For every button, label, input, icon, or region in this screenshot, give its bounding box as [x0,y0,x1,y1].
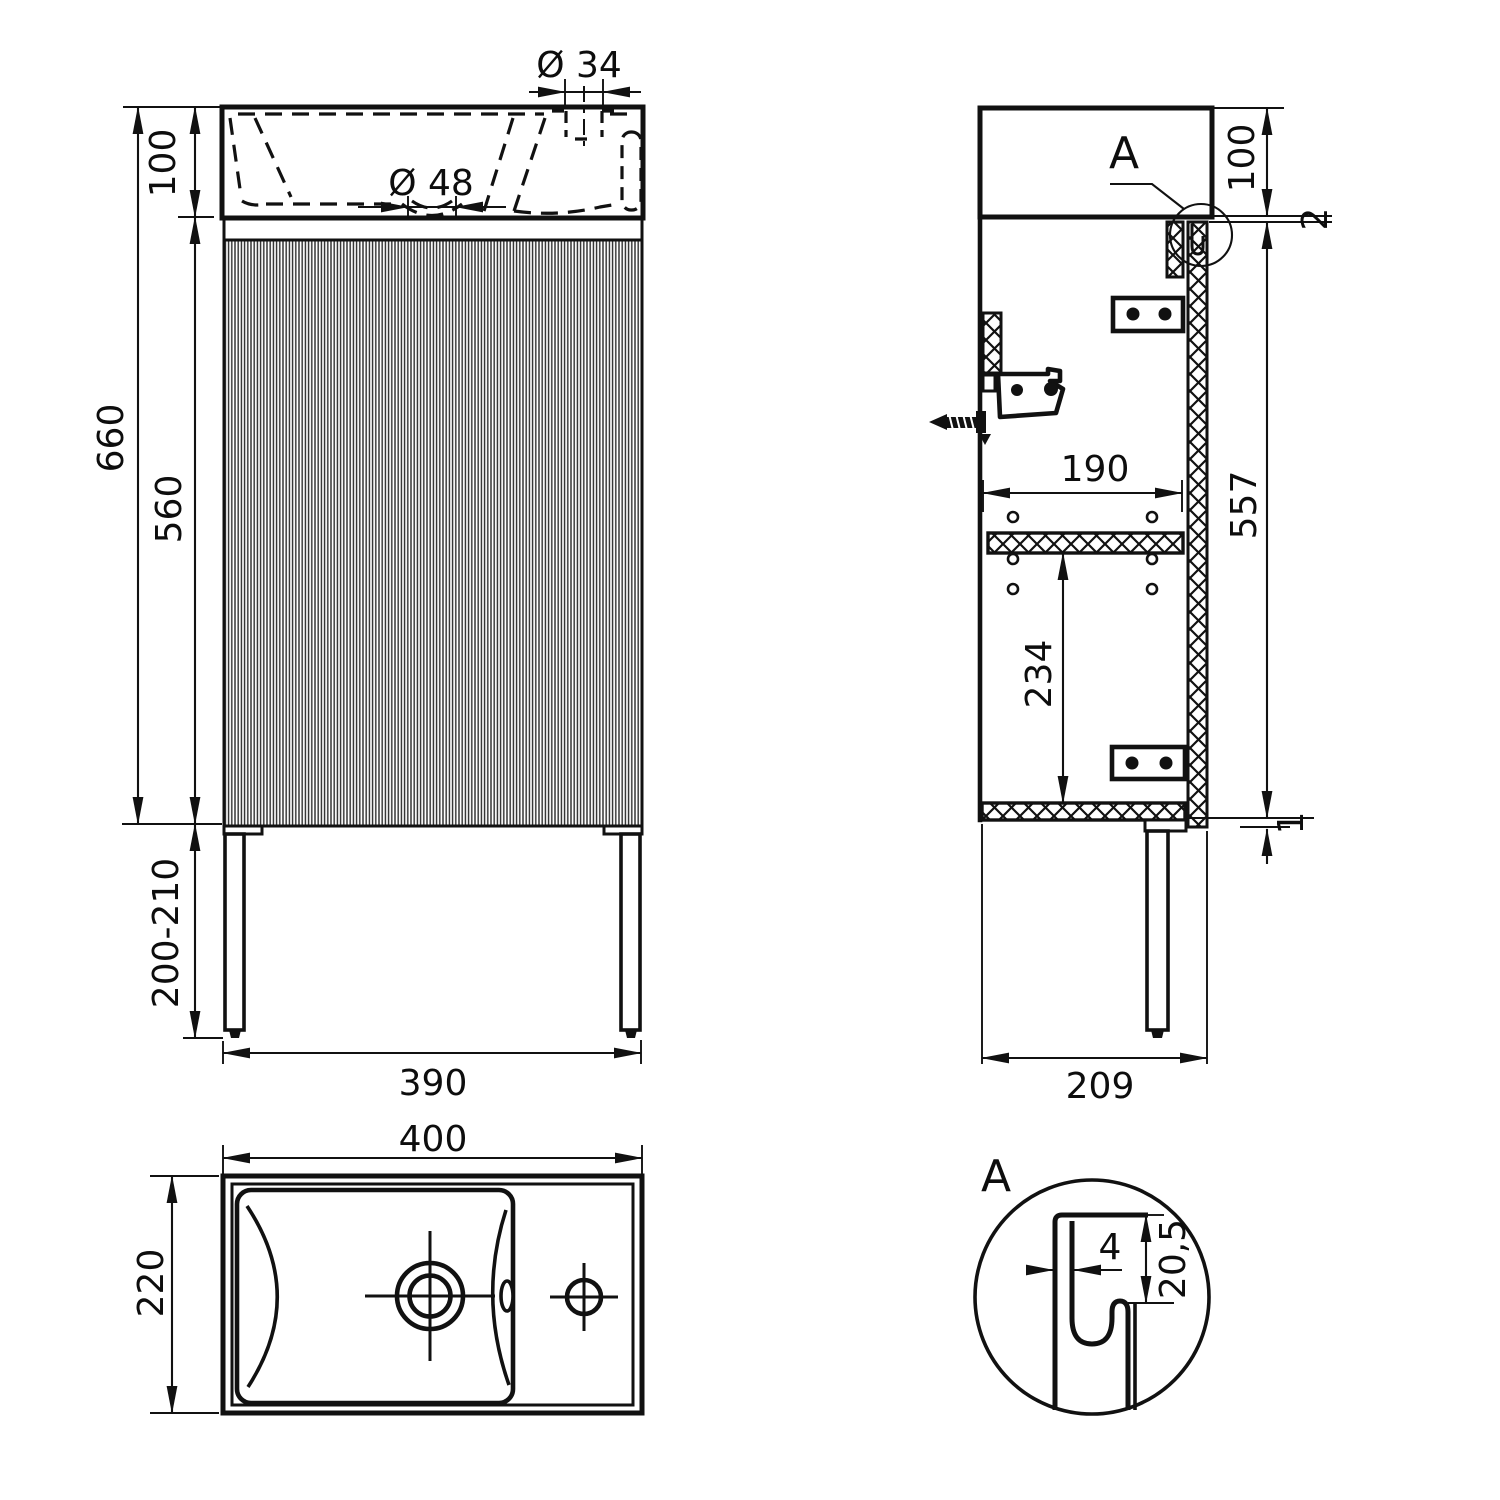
side-wall-rail-section [983,313,1001,373]
side-dimension-lines [982,108,1267,1058]
dim-side-body-height: 557 [1227,471,1263,540]
dim-front-drain-dia: Ø 48 [388,166,474,202]
top-overflow-slot [501,1281,513,1311]
side-shelf-section [988,533,1183,553]
front-left-foot [229,1030,241,1038]
front-view [122,79,643,1064]
dim-side-inner-depth: 190 [1061,452,1130,488]
dim-detail-wall-thickness: 4 [1099,1230,1122,1266]
side-lower-hinge-plate [1112,747,1185,779]
dim-front-sink-height: 100 [146,129,182,198]
front-right-foot [625,1030,637,1038]
drawing-canvas: Ø 34 Ø 48 100 660 560 200-210 390 A 100 … [0,0,1500,1500]
top-drain [365,1231,495,1361]
side-upper-hinge-plate [1113,298,1183,331]
dim-side-bottom-gap: 1 [1274,812,1310,835]
dim-top-depth: 220 [134,1249,170,1318]
side-foot [1151,1030,1164,1038]
dim-front-leg-height: 200-210 [149,858,185,1008]
side-door-section [1188,222,1207,827]
dim-top-width: 400 [399,1122,468,1158]
front-right-leg [621,834,640,1030]
detail-marker-label: A [981,1155,1011,1199]
dim-front-body-height: 560 [152,475,188,544]
dim-side-sink-height: 100 [1225,124,1261,193]
dim-detail-recess-depth: 20,5 [1156,1219,1192,1299]
detail-dimension-lines [1026,1215,1146,1303]
front-cabinet-top-band [224,218,642,240]
side-sink-outline [980,108,1212,217]
front-fluted-door [224,240,642,826]
front-left-leg [225,834,244,1030]
top-basin-left-wall-curve [247,1206,277,1387]
side-detail-leader [1110,184,1184,209]
top-faucet-hole [550,1263,618,1331]
side-bottom-panel-section [982,803,1185,820]
dim-front-faucet-dia: Ø 34 [536,48,622,84]
vanity-technical-drawing [0,0,1500,1500]
side-view [929,108,1332,1064]
dim-front-total-height: 660 [94,404,130,473]
dim-side-top-gap: 2 [1298,208,1334,231]
top-view [150,1145,642,1413]
dim-side-depth: 209 [1066,1069,1135,1105]
side-leg [1147,831,1168,1030]
side-rail-lip [983,375,995,391]
dim-front-width: 390 [399,1066,468,1102]
side-detail-marker-label: A [1109,132,1139,176]
dim-side-shelf-height: 234 [1022,640,1058,709]
